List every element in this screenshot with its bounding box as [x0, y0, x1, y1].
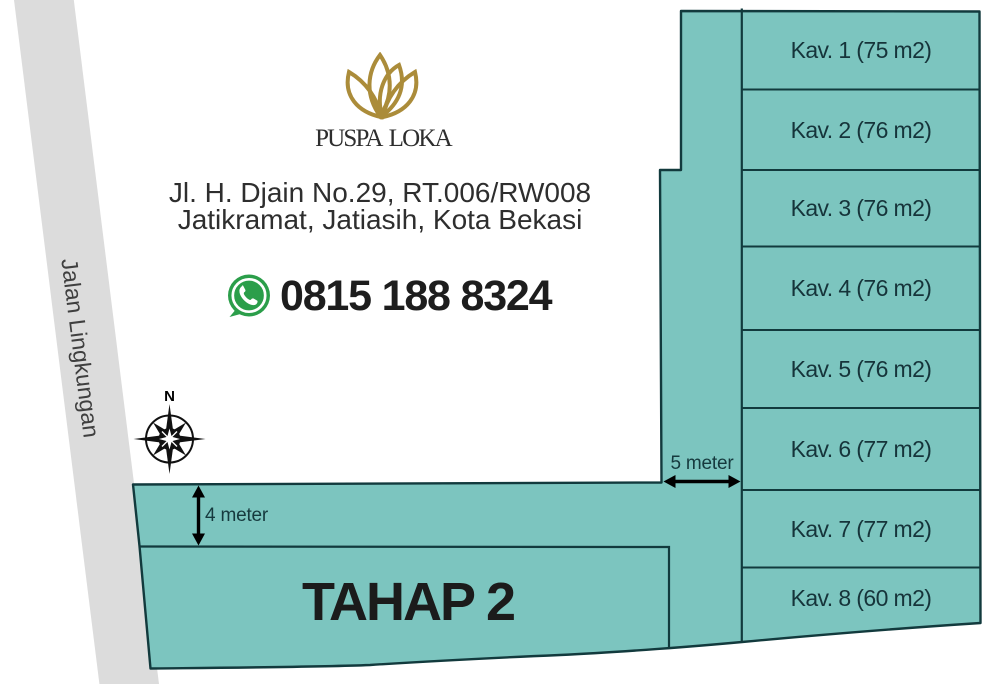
svg-text:N: N	[164, 388, 175, 405]
